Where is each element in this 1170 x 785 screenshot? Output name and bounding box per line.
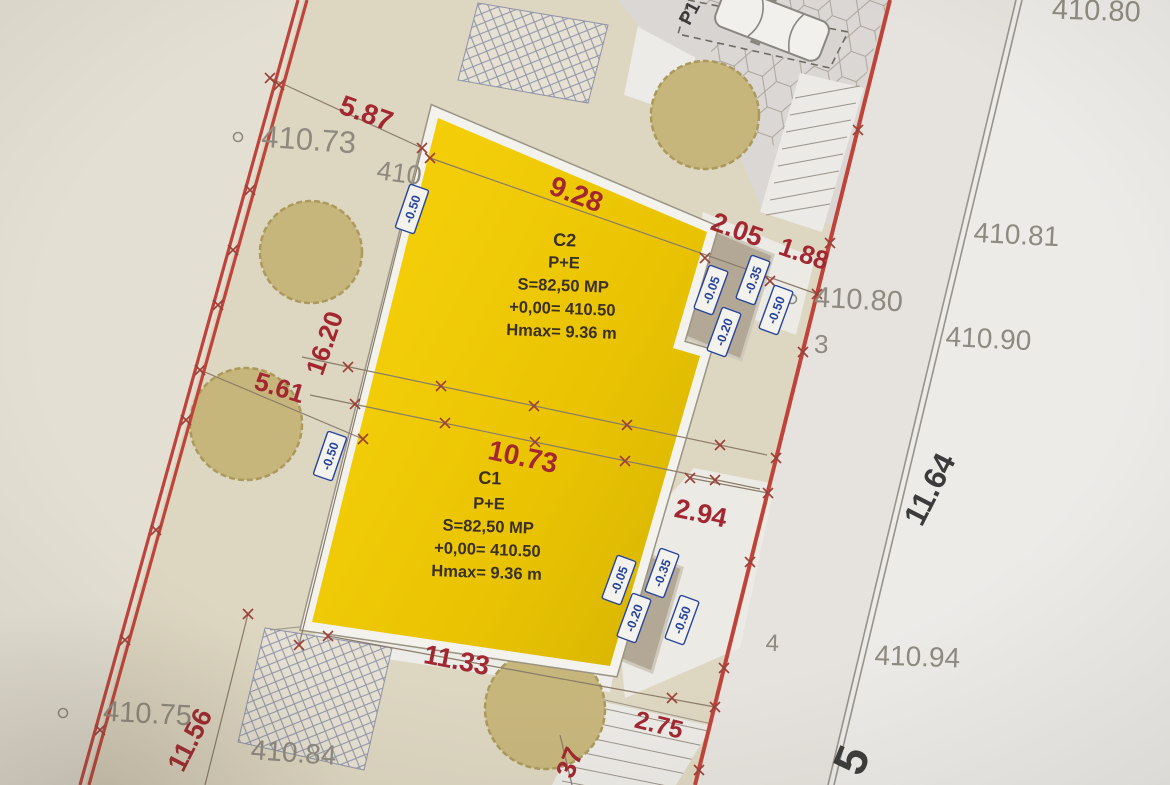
photo-shadow-corner (0, 600, 350, 785)
site-plan-photo: C2 P+E S=82,50 MP +0,00= 410.50 Hmax= 9.… (0, 0, 1170, 785)
site-plan-svg: C2 P+E S=82,50 MP +0,00= 410.50 Hmax= 9.… (0, 0, 1170, 785)
